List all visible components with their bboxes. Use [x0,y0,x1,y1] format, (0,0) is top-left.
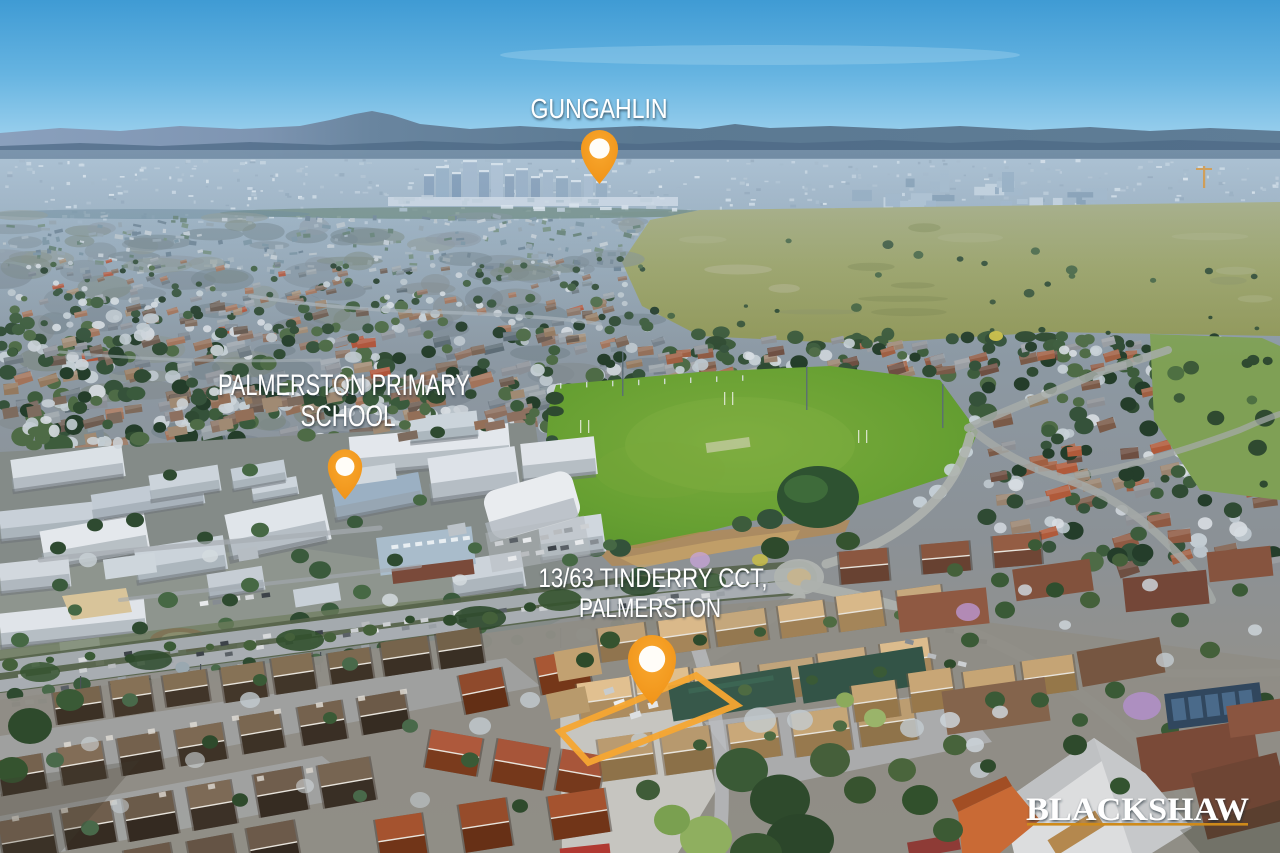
svg-text:PALMERSTON: PALMERSTON [579,593,721,623]
svg-text:GUNGAHLIN: GUNGAHLIN [531,93,668,124]
svg-text:PALMERSTON PRIMARY: PALMERSTON PRIMARY [218,369,470,402]
svg-text:13/63 TINDERRY CCT,: 13/63 TINDERRY CCT, [539,563,768,593]
svg-text:BLACKSHAW: BLACKSHAW [1026,792,1249,828]
svg-text:SCHOOL: SCHOOL [301,400,396,433]
